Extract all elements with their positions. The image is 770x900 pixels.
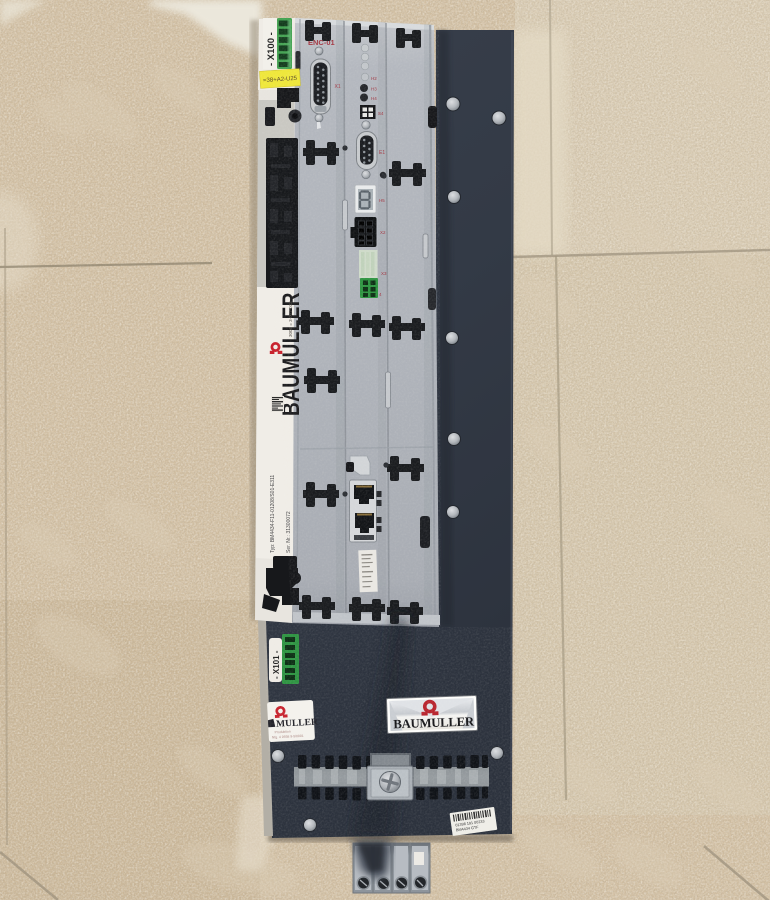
svg-text:Typ: BM4434-F11-01208/S01-E: Typ: BM4434-F11-01208/S01-E311 <box>270 475 276 553</box>
